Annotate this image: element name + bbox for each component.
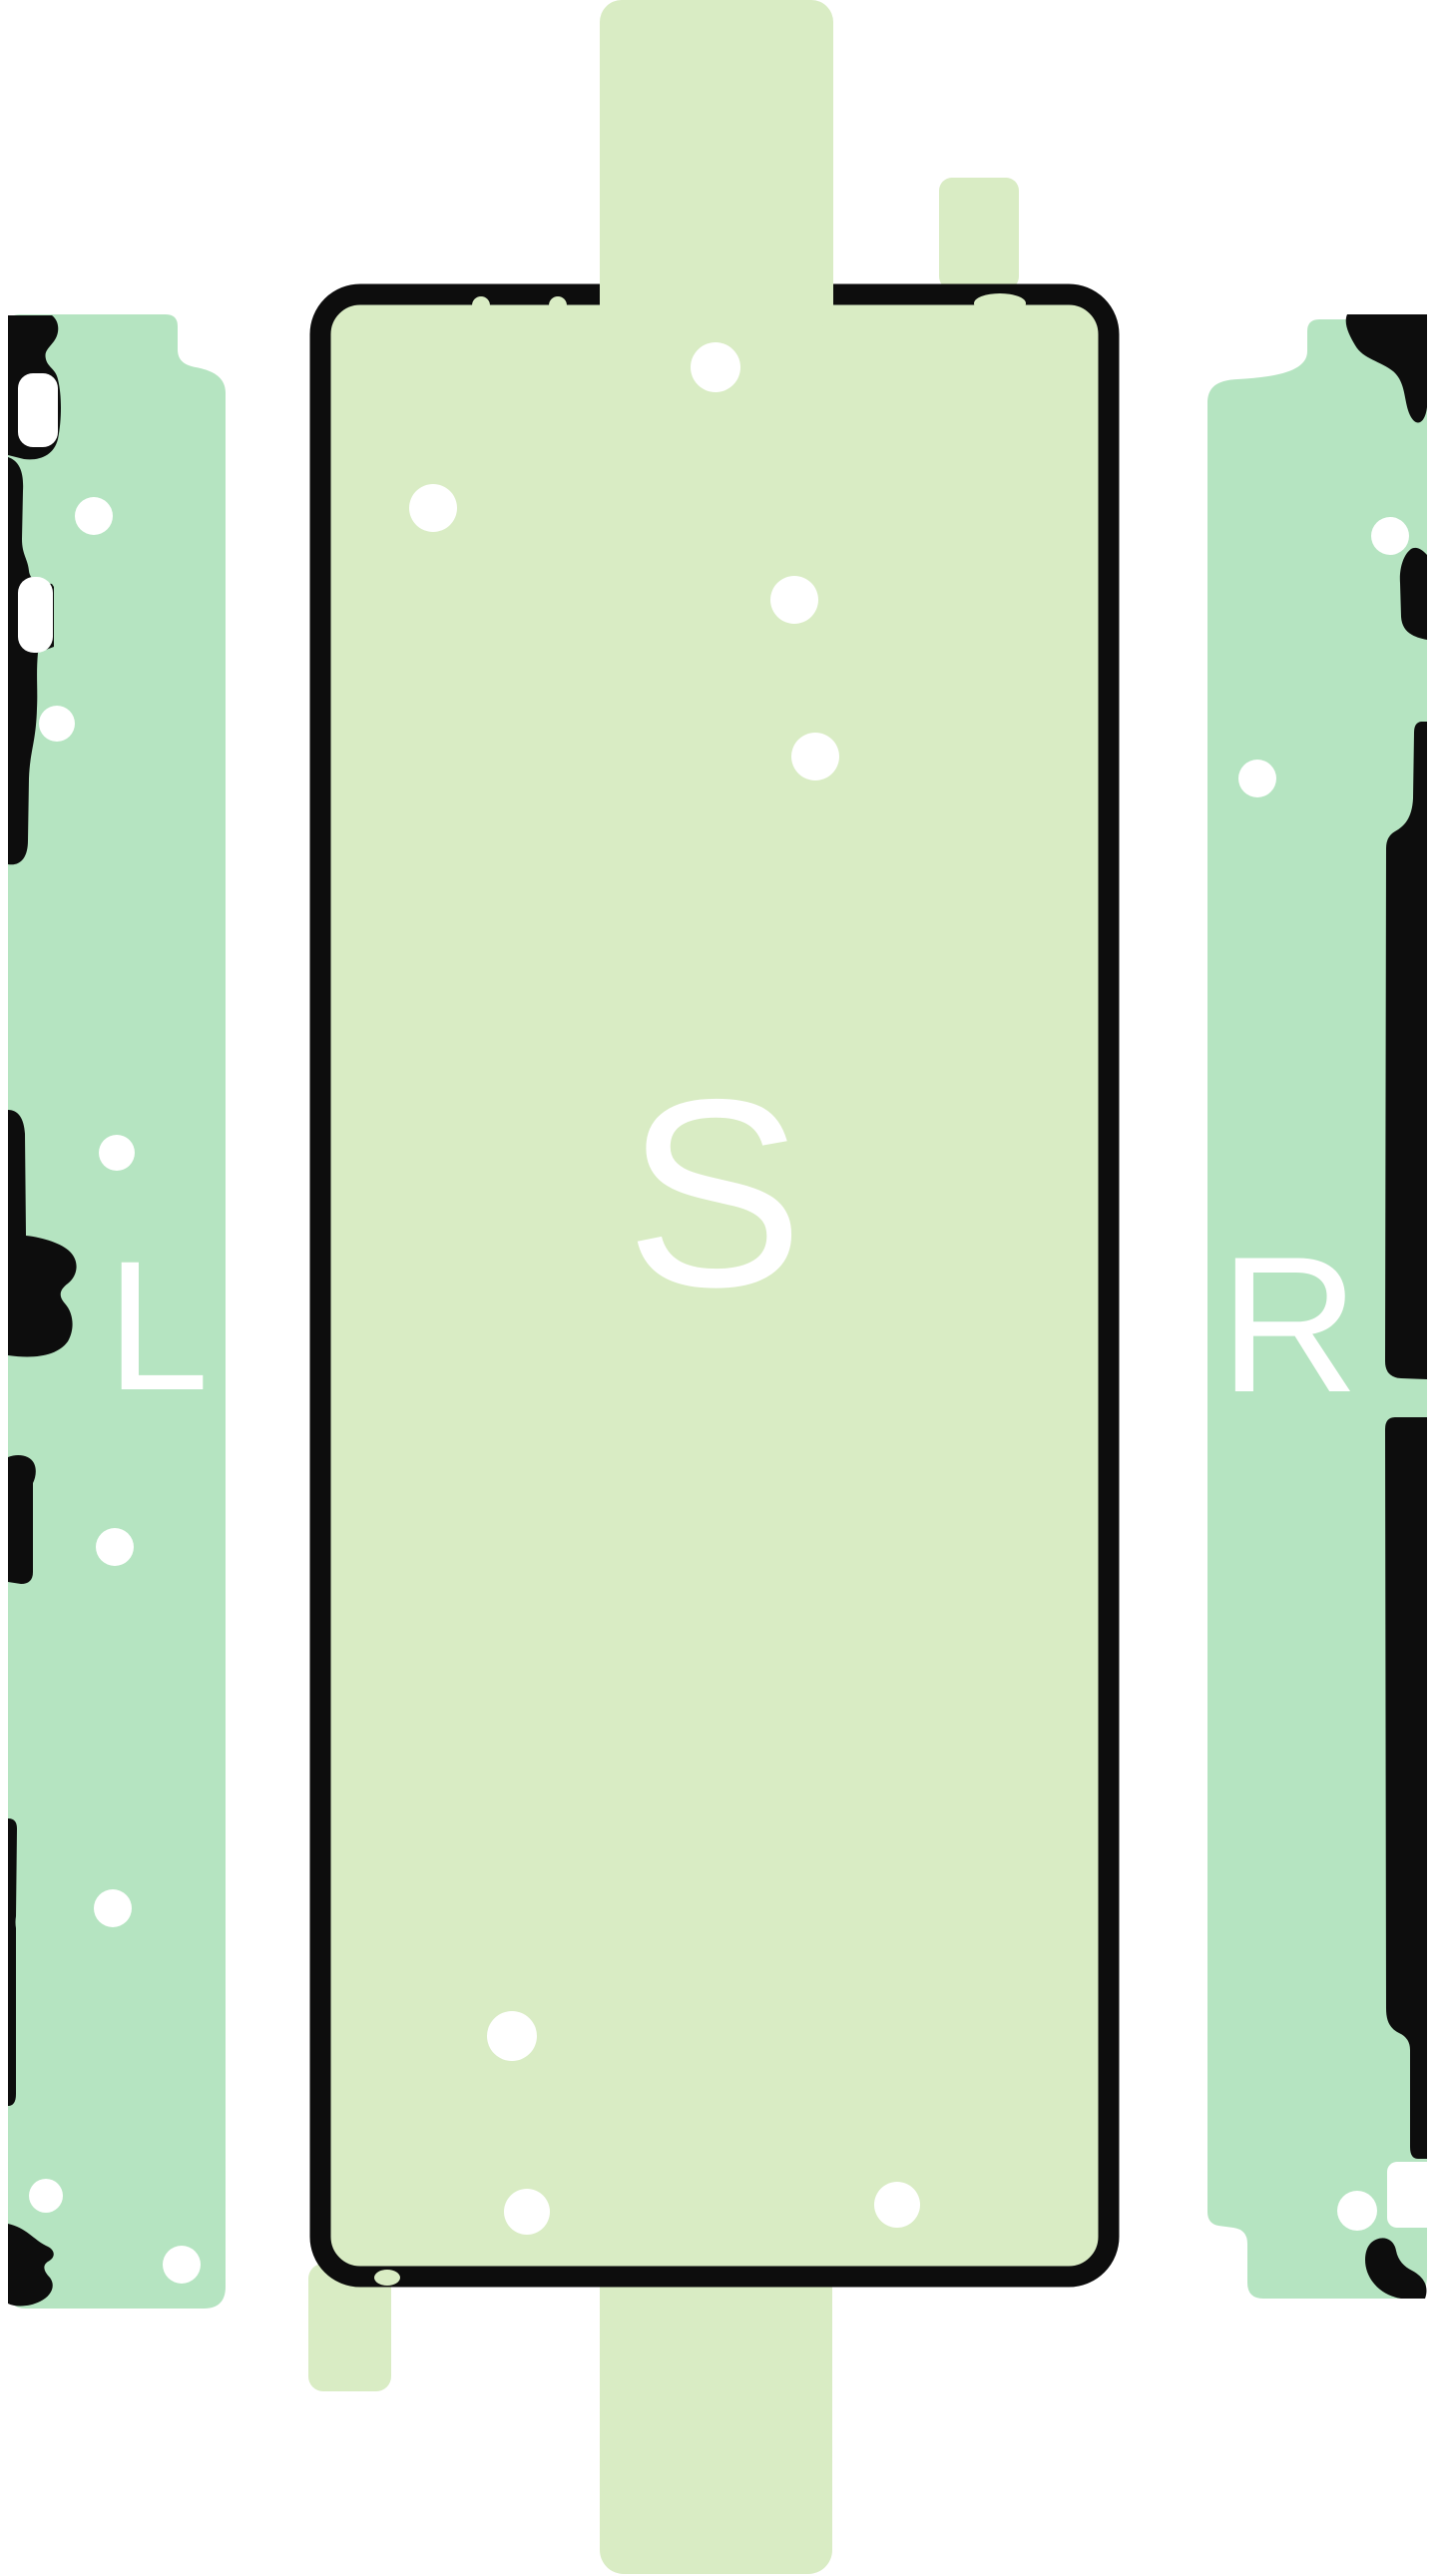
alignment-hole [504,2189,550,2235]
cut-notch [374,2270,400,2286]
adhesive-diagram-canvas: S L [0,0,1442,2576]
alignment-hole [791,733,839,780]
glue-mark [8,1455,36,1584]
alignment-hole [94,1889,132,1927]
alignment-hole [163,2246,201,2284]
right-strip-adhesive: R [1207,314,1442,2299]
alignment-hole [96,1528,134,1566]
adhesive-kit-diagram: S L [0,0,1442,2576]
pull-tab-top-small [939,178,1019,289]
button-cutout [18,577,53,653]
alignment-hole [99,1135,135,1171]
alignment-hole [1371,517,1409,555]
alignment-hole [29,2179,63,2213]
screen-adhesive-label: S [626,1043,804,1342]
button-cutout [18,373,58,447]
cut-notch [974,293,1026,313]
edge-notch-cutout [1387,2162,1442,2228]
left-strip-adhesive: L [8,314,226,2309]
alignment-hole [487,2011,537,2061]
glue-mark [8,1818,17,2106]
alignment-hole [75,497,113,535]
alignment-hole [874,2182,920,2228]
screen-adhesive: S [308,0,1109,2574]
pull-tab-bottom-large [600,2264,832,2574]
pull-tab-top-large [600,0,833,329]
cut-notch [472,296,490,314]
alignment-hole [691,342,740,392]
glue-mark [1400,548,1427,640]
alignment-hole [1337,2191,1377,2231]
left-strip-label: L [107,1224,210,1429]
alignment-hole [409,484,457,532]
alignment-hole [770,576,818,624]
alignment-hole [39,706,75,742]
cut-notch [549,296,567,314]
right-strip-label: R [1219,1217,1359,1433]
alignment-hole [1238,760,1276,797]
